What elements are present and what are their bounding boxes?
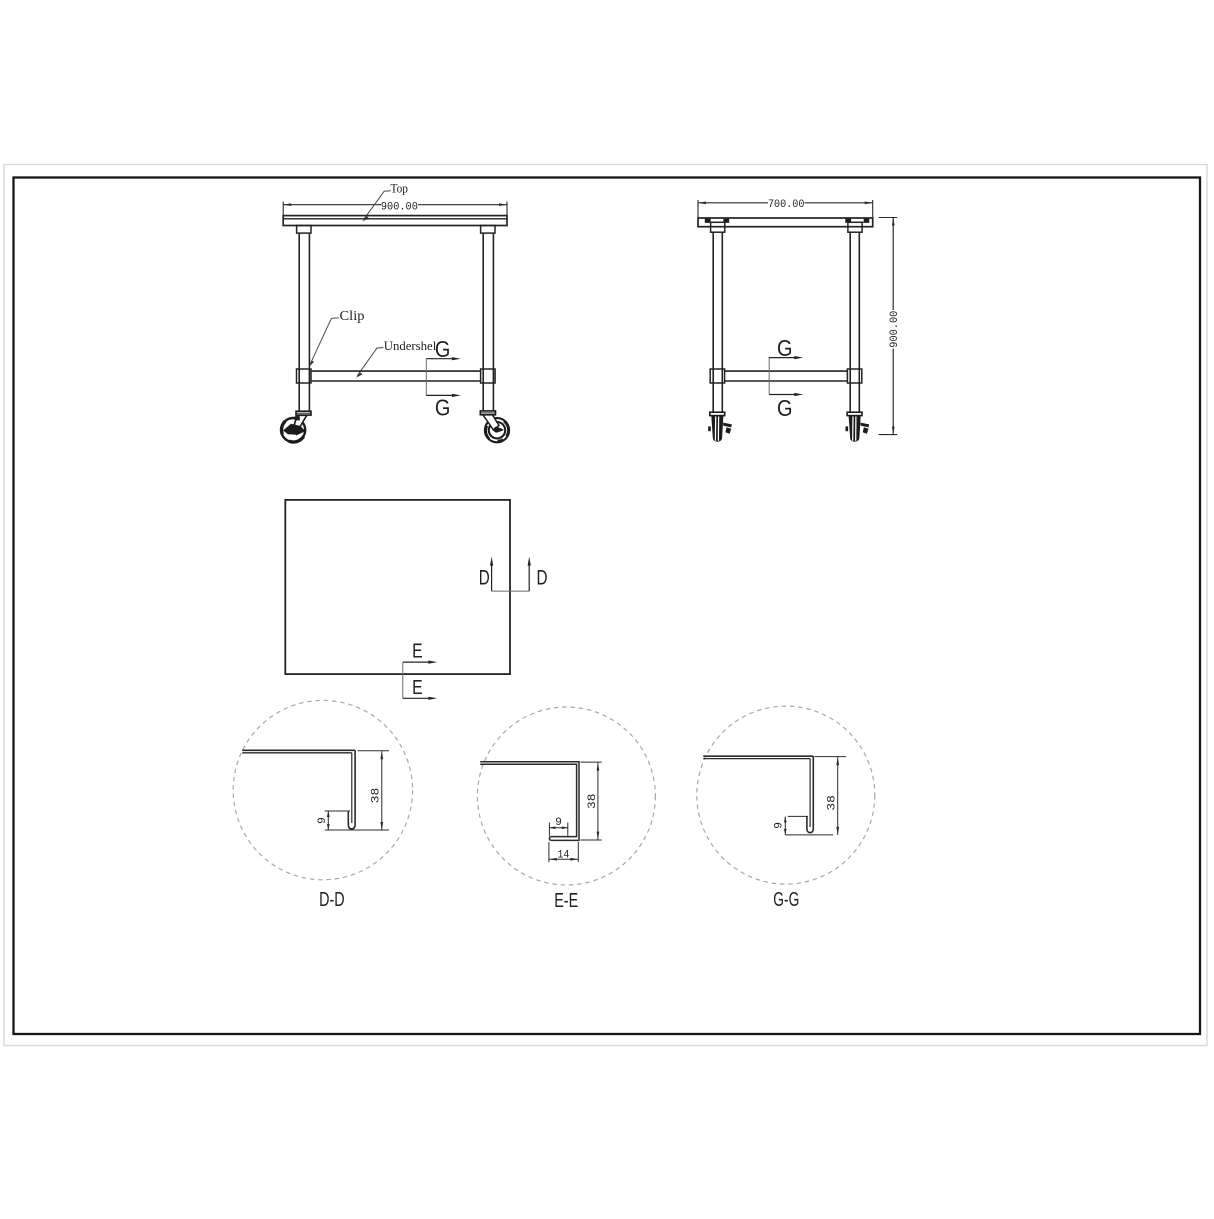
svg-text:38: 38 (587, 794, 599, 809)
svg-text:D-D: D-D (319, 889, 345, 911)
svg-text:D: D (479, 567, 490, 590)
svg-text:E: E (412, 641, 423, 663)
svg-text:900.00: 900.00 (889, 311, 901, 348)
svg-text:E-E: E-E (554, 890, 578, 912)
svg-text:E: E (412, 677, 423, 699)
svg-text:D: D (537, 567, 548, 590)
svg-text:38: 38 (826, 795, 838, 810)
svg-text:14: 14 (557, 849, 569, 861)
svg-text:9: 9 (317, 817, 329, 824)
svg-text:9: 9 (774, 822, 786, 829)
svg-text:9: 9 (555, 817, 562, 829)
svg-text:G: G (777, 395, 793, 421)
svg-text:G-G: G-G (773, 889, 799, 911)
svg-text:900.00: 900.00 (381, 202, 418, 214)
svg-text:Undershel: Undershel (384, 338, 437, 353)
svg-text:38: 38 (370, 788, 382, 803)
svg-text:Clip: Clip (340, 309, 365, 324)
svg-text:G: G (435, 395, 451, 421)
svg-text:Top: Top (390, 181, 408, 196)
svg-text:700.00: 700.00 (768, 199, 805, 211)
